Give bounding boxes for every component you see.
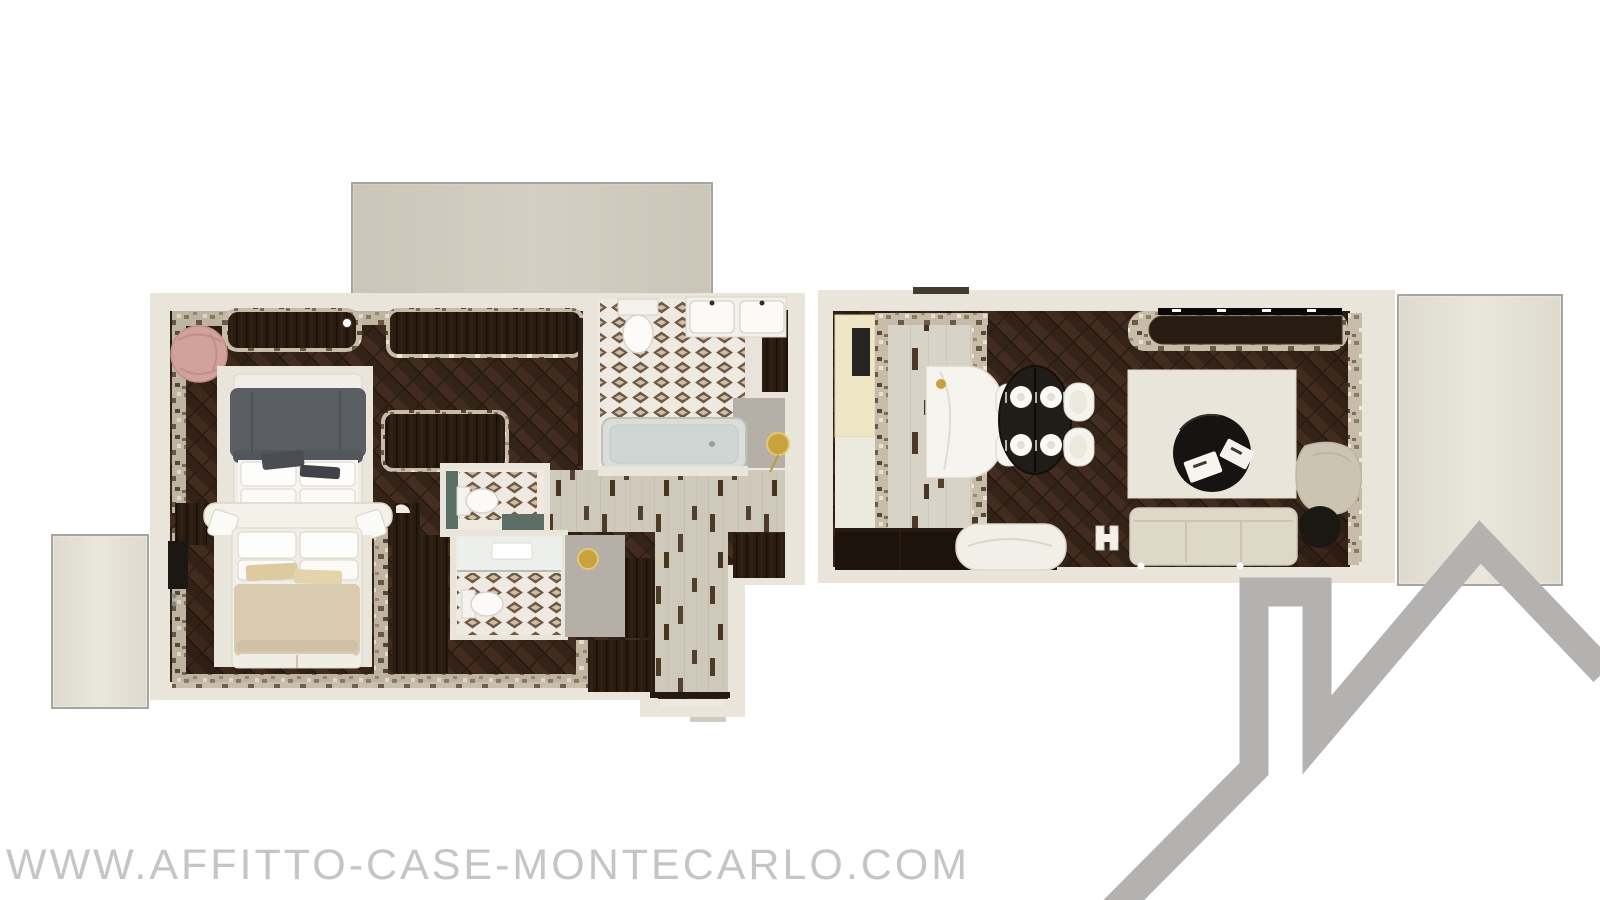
top-terrace — [352, 183, 712, 295]
duvet-fold — [236, 640, 358, 652]
double-bed-gray — [230, 374, 366, 514]
watermark-text: WWW.AFFITTO-CASE-MONTECARLO.COM — [6, 841, 970, 890]
bathroom-wall-bottom — [598, 466, 748, 476]
wc-1 — [443, 466, 547, 534]
white-chaise — [956, 524, 1066, 570]
wc-2 — [453, 533, 565, 637]
console-knob — [343, 319, 352, 328]
wall-vent — [913, 287, 969, 294]
stone-border — [875, 313, 988, 325]
towel — [492, 543, 532, 559]
kitchen-island — [926, 366, 1002, 478]
gray-duvet — [230, 388, 366, 458]
tv-console — [1128, 308, 1348, 351]
floorplan-image: WWW.AFFITTO-CASE-MONTECARLO.COM — [0, 0, 1600, 900]
door-threshold — [650, 692, 730, 698]
toilet — [457, 487, 498, 515]
entry — [835, 315, 875, 565]
round-side-table — [1299, 506, 1341, 548]
wc1-teal-corner — [502, 514, 544, 531]
wardrobe-mid — [385, 414, 505, 468]
wardrobe-top — [390, 312, 580, 354]
wardrobe-left-of-wc — [392, 535, 448, 673]
switch — [172, 602, 177, 607]
hall-carpet-h — [545, 470, 785, 532]
dining-chair — [1064, 383, 1094, 421]
floorplan-svg — [0, 0, 1600, 900]
stone-border — [1348, 313, 1362, 565]
bathtub — [602, 418, 746, 470]
wc1-teal-wall — [446, 471, 458, 529]
double-sink-vanity — [686, 297, 786, 337]
wardrobe-bottom — [588, 640, 660, 692]
sofa — [1130, 508, 1297, 570]
double-bed-beige — [232, 528, 362, 668]
door-dark-leaf — [852, 328, 870, 376]
headboard-console — [228, 312, 356, 348]
dining-chair — [1064, 428, 1094, 466]
wardrobe-hall — [625, 558, 658, 638]
entry-door-strip — [660, 700, 724, 706]
faucet — [710, 301, 715, 306]
sofa-leg — [1138, 563, 1145, 570]
sofa-leg — [1237, 563, 1244, 570]
left-terrace — [52, 535, 148, 708]
pillow — [238, 532, 296, 558]
switch — [172, 594, 177, 599]
bathroom-wall — [583, 299, 600, 470]
main-bathroom — [583, 297, 789, 472]
right-wing — [818, 287, 1395, 583]
island-knob — [936, 379, 946, 389]
headboard-post — [175, 503, 207, 545]
wardrobe-corner — [733, 533, 785, 578]
tv-panel — [168, 541, 188, 589]
pillow — [300, 532, 358, 558]
entry-step — [690, 717, 726, 722]
beige-pillow — [294, 569, 342, 585]
hall-carpet-v — [655, 532, 728, 695]
faucet — [760, 301, 765, 306]
toilet — [462, 590, 503, 618]
left-wing — [150, 293, 805, 722]
sideboard — [835, 524, 1066, 570]
bath-vestibule — [565, 535, 625, 637]
beige-pillow — [246, 563, 299, 582]
gold-lamp — [578, 549, 598, 569]
